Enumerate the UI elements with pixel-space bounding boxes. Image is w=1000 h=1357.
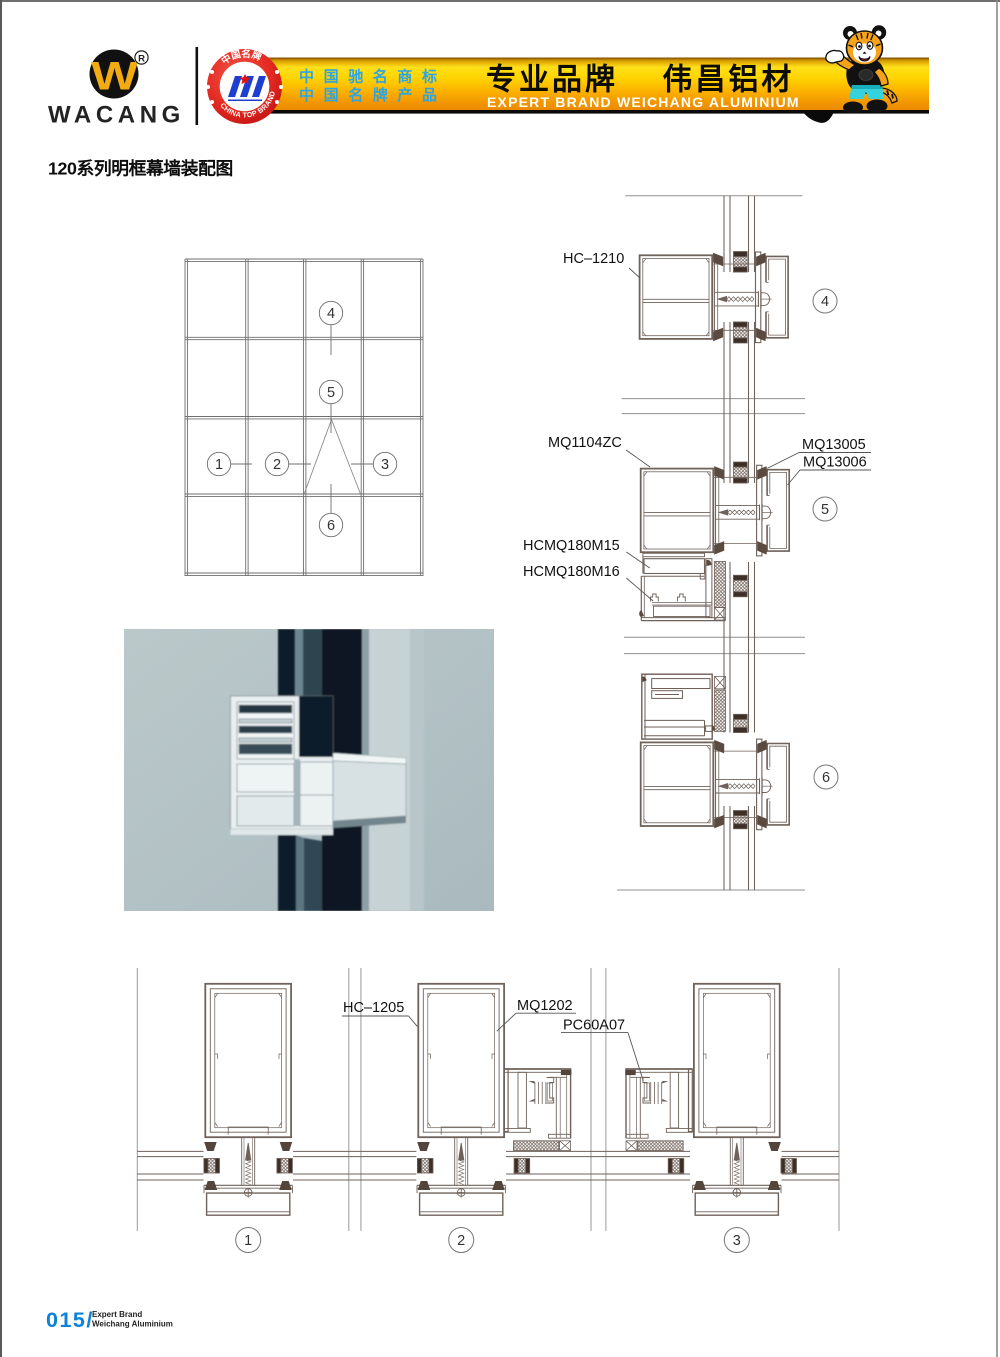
svg-text:W: W (91, 53, 138, 98)
svg-text:中国名牌产品: 中国名牌产品 (299, 86, 447, 104)
svg-text:MQ1104ZC: MQ1104ZC (548, 435, 622, 451)
svg-text:4: 4 (327, 306, 335, 322)
svg-text:MQ1202: MQ1202 (517, 998, 573, 1014)
svg-text:HC–1205: HC–1205 (343, 1000, 404, 1016)
svg-text:R: R (138, 53, 145, 64)
svg-text:EXPERT BRAND WEICHANG ALUMINIU: EXPERT BRAND WEICHANG ALUMINIUM (487, 94, 800, 110)
svg-text:2: 2 (457, 1233, 465, 1249)
svg-text:HCMQ180M15: HCMQ180M15 (523, 538, 620, 554)
svg-text:HC–1210: HC–1210 (563, 251, 624, 267)
svg-text:3: 3 (381, 457, 389, 473)
svg-text:WACANG: WACANG (48, 102, 185, 129)
svg-text:5: 5 (327, 385, 335, 401)
svg-text:120系列明框幕墙装配图: 120系列明框幕墙装配图 (48, 158, 233, 179)
svg-text:015/: 015/ (46, 1308, 94, 1332)
svg-text:MQ13006: MQ13006 (803, 455, 867, 471)
svg-text:专业品牌 伟昌铝材: 专业品牌 伟昌铝材 (486, 64, 794, 97)
svg-text:4: 4 (821, 294, 829, 310)
svg-text:3: 3 (733, 1233, 741, 1249)
svg-text:5: 5 (821, 502, 829, 518)
svg-text:1: 1 (215, 457, 223, 473)
svg-text:MQ13005: MQ13005 (802, 437, 866, 453)
svg-text:HCMQ180M16: HCMQ180M16 (523, 564, 620, 580)
svg-text:PC60A07: PC60A07 (563, 1018, 625, 1034)
svg-text:6: 6 (822, 770, 830, 786)
svg-text:1: 1 (244, 1233, 252, 1249)
svg-text:中国驰名商标: 中国驰名商标 (299, 68, 447, 86)
svg-text:6: 6 (327, 518, 335, 534)
svg-text:Weichang Aluminium: Weichang Aluminium (92, 1320, 173, 1329)
svg-text:Expert Brand: Expert Brand (92, 1310, 142, 1319)
svg-text:2: 2 (273, 457, 281, 473)
